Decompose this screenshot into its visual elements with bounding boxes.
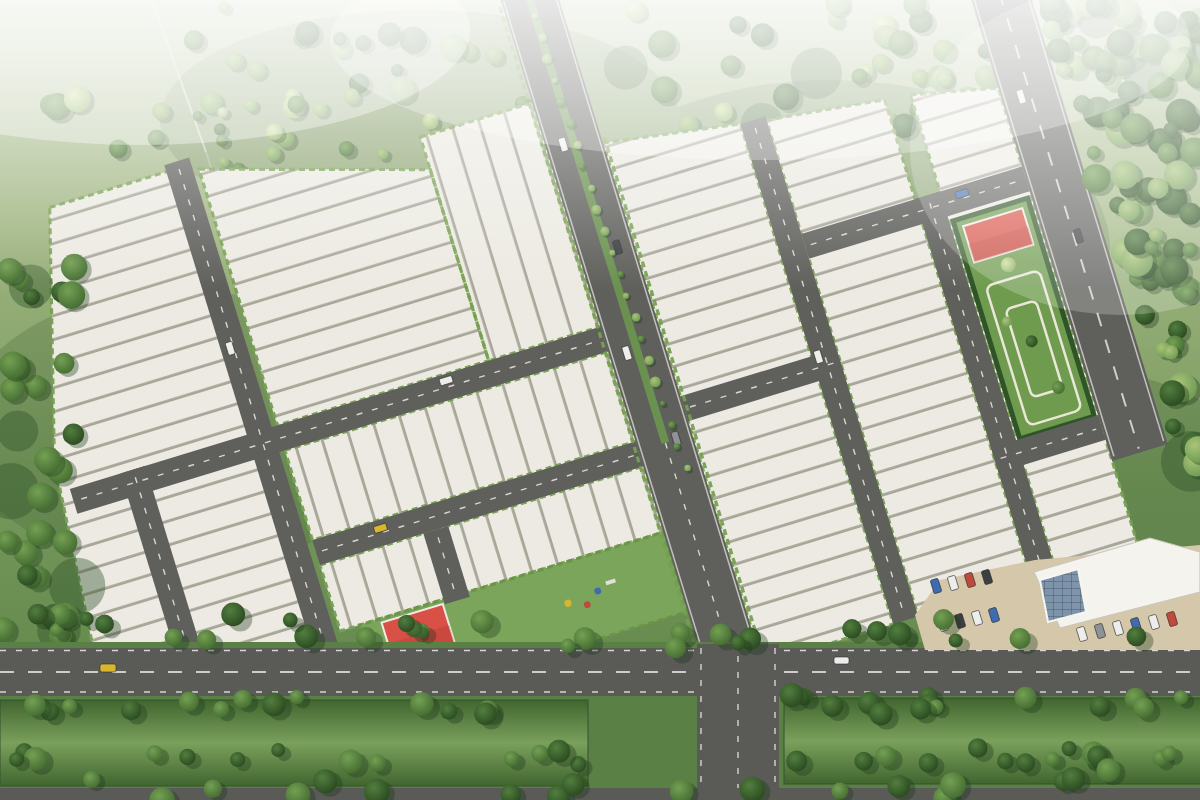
- tree-icon: [872, 54, 890, 72]
- tree-icon: [1087, 146, 1101, 160]
- tree-icon: [588, 185, 595, 192]
- tree-icon: [266, 124, 283, 141]
- highway-crossing-road: [697, 644, 779, 800]
- tree-icon: [591, 205, 601, 215]
- tree-icon: [604, 46, 648, 90]
- tree-icon: [1016, 753, 1035, 772]
- tree-icon: [1062, 741, 1077, 756]
- tree-icon: [1102, 108, 1123, 129]
- tree-icon: [266, 146, 281, 161]
- tree-icon: [1073, 95, 1091, 113]
- tree-icon: [213, 701, 229, 717]
- tree-icon: [313, 769, 337, 793]
- tree-icon: [439, 34, 465, 60]
- tree-icon: [1015, 687, 1037, 709]
- tree-icon: [933, 609, 954, 630]
- tree-icon: [1045, 752, 1060, 767]
- tree-icon: [28, 604, 49, 625]
- tree-icon: [1179, 11, 1199, 31]
- tree-icon: [1062, 767, 1086, 791]
- tree-icon: [1070, 35, 1086, 51]
- tree-icon: [179, 749, 195, 765]
- tree-icon: [714, 103, 733, 122]
- tree-icon: [566, 119, 575, 128]
- tree-icon: [1010, 628, 1031, 649]
- tree-icon: [1094, 51, 1113, 70]
- tree-icon: [422, 113, 438, 129]
- tree-icon: [1164, 345, 1179, 360]
- tree-icon: [1180, 286, 1196, 302]
- tree-icon: [109, 139, 128, 158]
- tree-icon: [1157, 143, 1177, 163]
- tree-icon: [1161, 745, 1177, 761]
- tree-icon: [668, 421, 675, 428]
- tree-icon: [290, 690, 304, 704]
- tree-icon: [338, 749, 362, 773]
- tree-icon: [262, 693, 286, 717]
- tree-icon: [949, 633, 963, 647]
- tree-icon: [651, 76, 678, 103]
- tree-icon: [1133, 697, 1154, 718]
- tree-icon: [1164, 122, 1179, 137]
- highway-south-carriageway: [0, 788, 1200, 800]
- tree-icon: [204, 780, 222, 798]
- tree-icon: [283, 613, 298, 628]
- tree-icon: [773, 84, 799, 110]
- tree-icon: [61, 254, 88, 281]
- tree-icon: [504, 751, 520, 767]
- tree-icon: [673, 443, 680, 450]
- tree-icon: [221, 603, 245, 627]
- tree-icon: [63, 424, 84, 445]
- tree-icon: [1107, 29, 1134, 56]
- tree-icon: [17, 565, 38, 586]
- tree-icon: [369, 754, 386, 771]
- tree-icon: [623, 293, 629, 299]
- tree-icon: [1154, 11, 1177, 34]
- tree-icon: [226, 52, 244, 70]
- tree-icon: [121, 700, 141, 720]
- tree-icon: [684, 465, 691, 472]
- tree-icon: [23, 289, 40, 306]
- tree-icon: [1165, 418, 1181, 434]
- tree-icon: [271, 743, 285, 757]
- tree-icon: [1148, 178, 1169, 199]
- tree-icon: [786, 751, 807, 772]
- tree-icon: [625, 1, 645, 21]
- tree-icon: [146, 745, 163, 762]
- tree-icon: [1174, 690, 1188, 704]
- tree-icon: [339, 141, 355, 157]
- tree-icon: [892, 114, 916, 138]
- tree-icon: [9, 752, 24, 767]
- tree-icon: [214, 123, 226, 135]
- tree-icon: [244, 99, 257, 112]
- tree-icon: [556, 97, 565, 106]
- tree-icon: [936, 70, 952, 86]
- tree-icon: [888, 622, 911, 645]
- tree-icon: [538, 33, 547, 42]
- tree-icon: [1127, 627, 1147, 647]
- tree-icon: [83, 771, 100, 788]
- tree-icon: [997, 753, 1014, 770]
- tree-icon: [660, 401, 665, 406]
- tree-icon: [95, 614, 114, 633]
- tree-icon: [851, 69, 867, 85]
- tree-icon: [751, 23, 774, 46]
- tree-icon: [542, 54, 552, 64]
- tree-icon: [197, 630, 217, 650]
- tree-icon: [79, 612, 93, 626]
- tree-icon: [609, 250, 615, 256]
- tree-icon: [148, 130, 165, 147]
- tree-icon: [869, 702, 892, 725]
- tree-icon: [867, 621, 887, 641]
- tree-icon: [910, 698, 931, 719]
- tree-icon: [1161, 50, 1189, 78]
- tree-icon: [27, 483, 54, 510]
- tree-icon: [650, 377, 661, 388]
- tree-icon: [1118, 200, 1139, 221]
- tree-icon: [152, 102, 170, 120]
- tree-icon: [600, 227, 609, 236]
- tree-icon: [218, 1, 230, 13]
- tree-icon: [54, 353, 75, 374]
- tree-icon: [1182, 242, 1197, 257]
- tree-icon: [313, 102, 328, 117]
- tree-icon: [355, 35, 371, 51]
- tree-icon: [179, 692, 199, 712]
- aerial-site-plan-image: [0, 0, 1200, 800]
- tree-icon: [1090, 696, 1111, 717]
- tree-icon: [1111, 161, 1139, 189]
- tree-icon: [617, 271, 624, 278]
- tree-icon: [710, 624, 732, 646]
- tree-icon: [217, 107, 228, 118]
- tree-icon: [1120, 113, 1150, 143]
- tree-icon: [562, 773, 585, 796]
- tree-icon: [216, 135, 228, 147]
- tree-icon: [193, 111, 203, 121]
- tree-icon: [388, 76, 414, 102]
- tree-icon: [230, 752, 245, 767]
- tree-icon: [64, 86, 91, 113]
- tree-icon: [219, 157, 229, 167]
- tree-icon: [644, 356, 653, 365]
- tree-icon: [912, 69, 929, 86]
- tree-icon: [1097, 758, 1121, 782]
- tree-icon: [474, 703, 497, 726]
- tree-icon: [573, 141, 581, 149]
- tree-icon: [731, 635, 746, 650]
- site-plan-rendering: [0, 0, 1200, 800]
- tree-icon: [1149, 228, 1163, 242]
- tree-icon: [485, 47, 503, 65]
- tree-icon: [875, 745, 896, 766]
- tree-icon: [968, 738, 988, 758]
- tree-icon: [24, 694, 46, 716]
- tree-icon: [58, 281, 86, 309]
- tree-icon: [184, 30, 204, 50]
- tree-icon: [1135, 305, 1155, 325]
- tree-icon: [729, 16, 747, 34]
- tree-icon: [0, 351, 26, 378]
- tree-icon: [721, 55, 742, 76]
- tree-icon: [842, 619, 861, 638]
- tree-icon: [552, 78, 557, 83]
- tree-icon: [410, 692, 433, 715]
- tree-icon: [391, 64, 404, 77]
- tree-icon: [665, 637, 686, 658]
- tree-icon: [821, 695, 843, 717]
- tree-icon: [471, 610, 494, 633]
- tree-icon: [632, 313, 641, 322]
- tree-icon: [356, 627, 376, 647]
- tree-icon: [1056, 63, 1070, 77]
- tree-icon: [398, 615, 415, 632]
- tree-icon: [34, 447, 61, 474]
- tree-icon: [638, 336, 645, 343]
- tree-icon: [561, 639, 576, 654]
- tree-icon: [441, 703, 458, 720]
- tree-icon: [1160, 380, 1186, 406]
- tree-icon: [247, 60, 265, 78]
- tree-icon: [26, 520, 52, 546]
- tree-icon: [53, 530, 78, 555]
- tree-icon: [532, 13, 538, 19]
- tree-icon: [233, 690, 252, 709]
- tree-icon: [888, 30, 913, 55]
- tree-icon: [888, 775, 911, 798]
- tree-icon: [295, 21, 319, 45]
- tree-icon: [333, 32, 347, 46]
- tree-icon: [1160, 256, 1189, 285]
- tree-icon: [343, 88, 359, 104]
- tree-icon: [933, 40, 955, 62]
- tree-icon: [531, 745, 548, 762]
- tree-icon: [940, 772, 966, 798]
- tree-icon: [287, 96, 305, 114]
- tree-icon: [165, 628, 183, 646]
- tree-icon: [378, 23, 401, 46]
- tree-icon: [1082, 164, 1111, 193]
- tree-icon: [854, 752, 873, 771]
- tree-icon: [648, 30, 676, 58]
- tree-icon: [377, 148, 389, 160]
- tree-icon: [548, 740, 571, 763]
- tree-icon: [780, 683, 804, 707]
- tree-icon: [919, 753, 939, 773]
- tree-icon: [1046, 38, 1070, 62]
- tree-icon: [578, 164, 584, 170]
- tree-icon: [1042, 20, 1060, 38]
- tree-icon: [831, 783, 848, 800]
